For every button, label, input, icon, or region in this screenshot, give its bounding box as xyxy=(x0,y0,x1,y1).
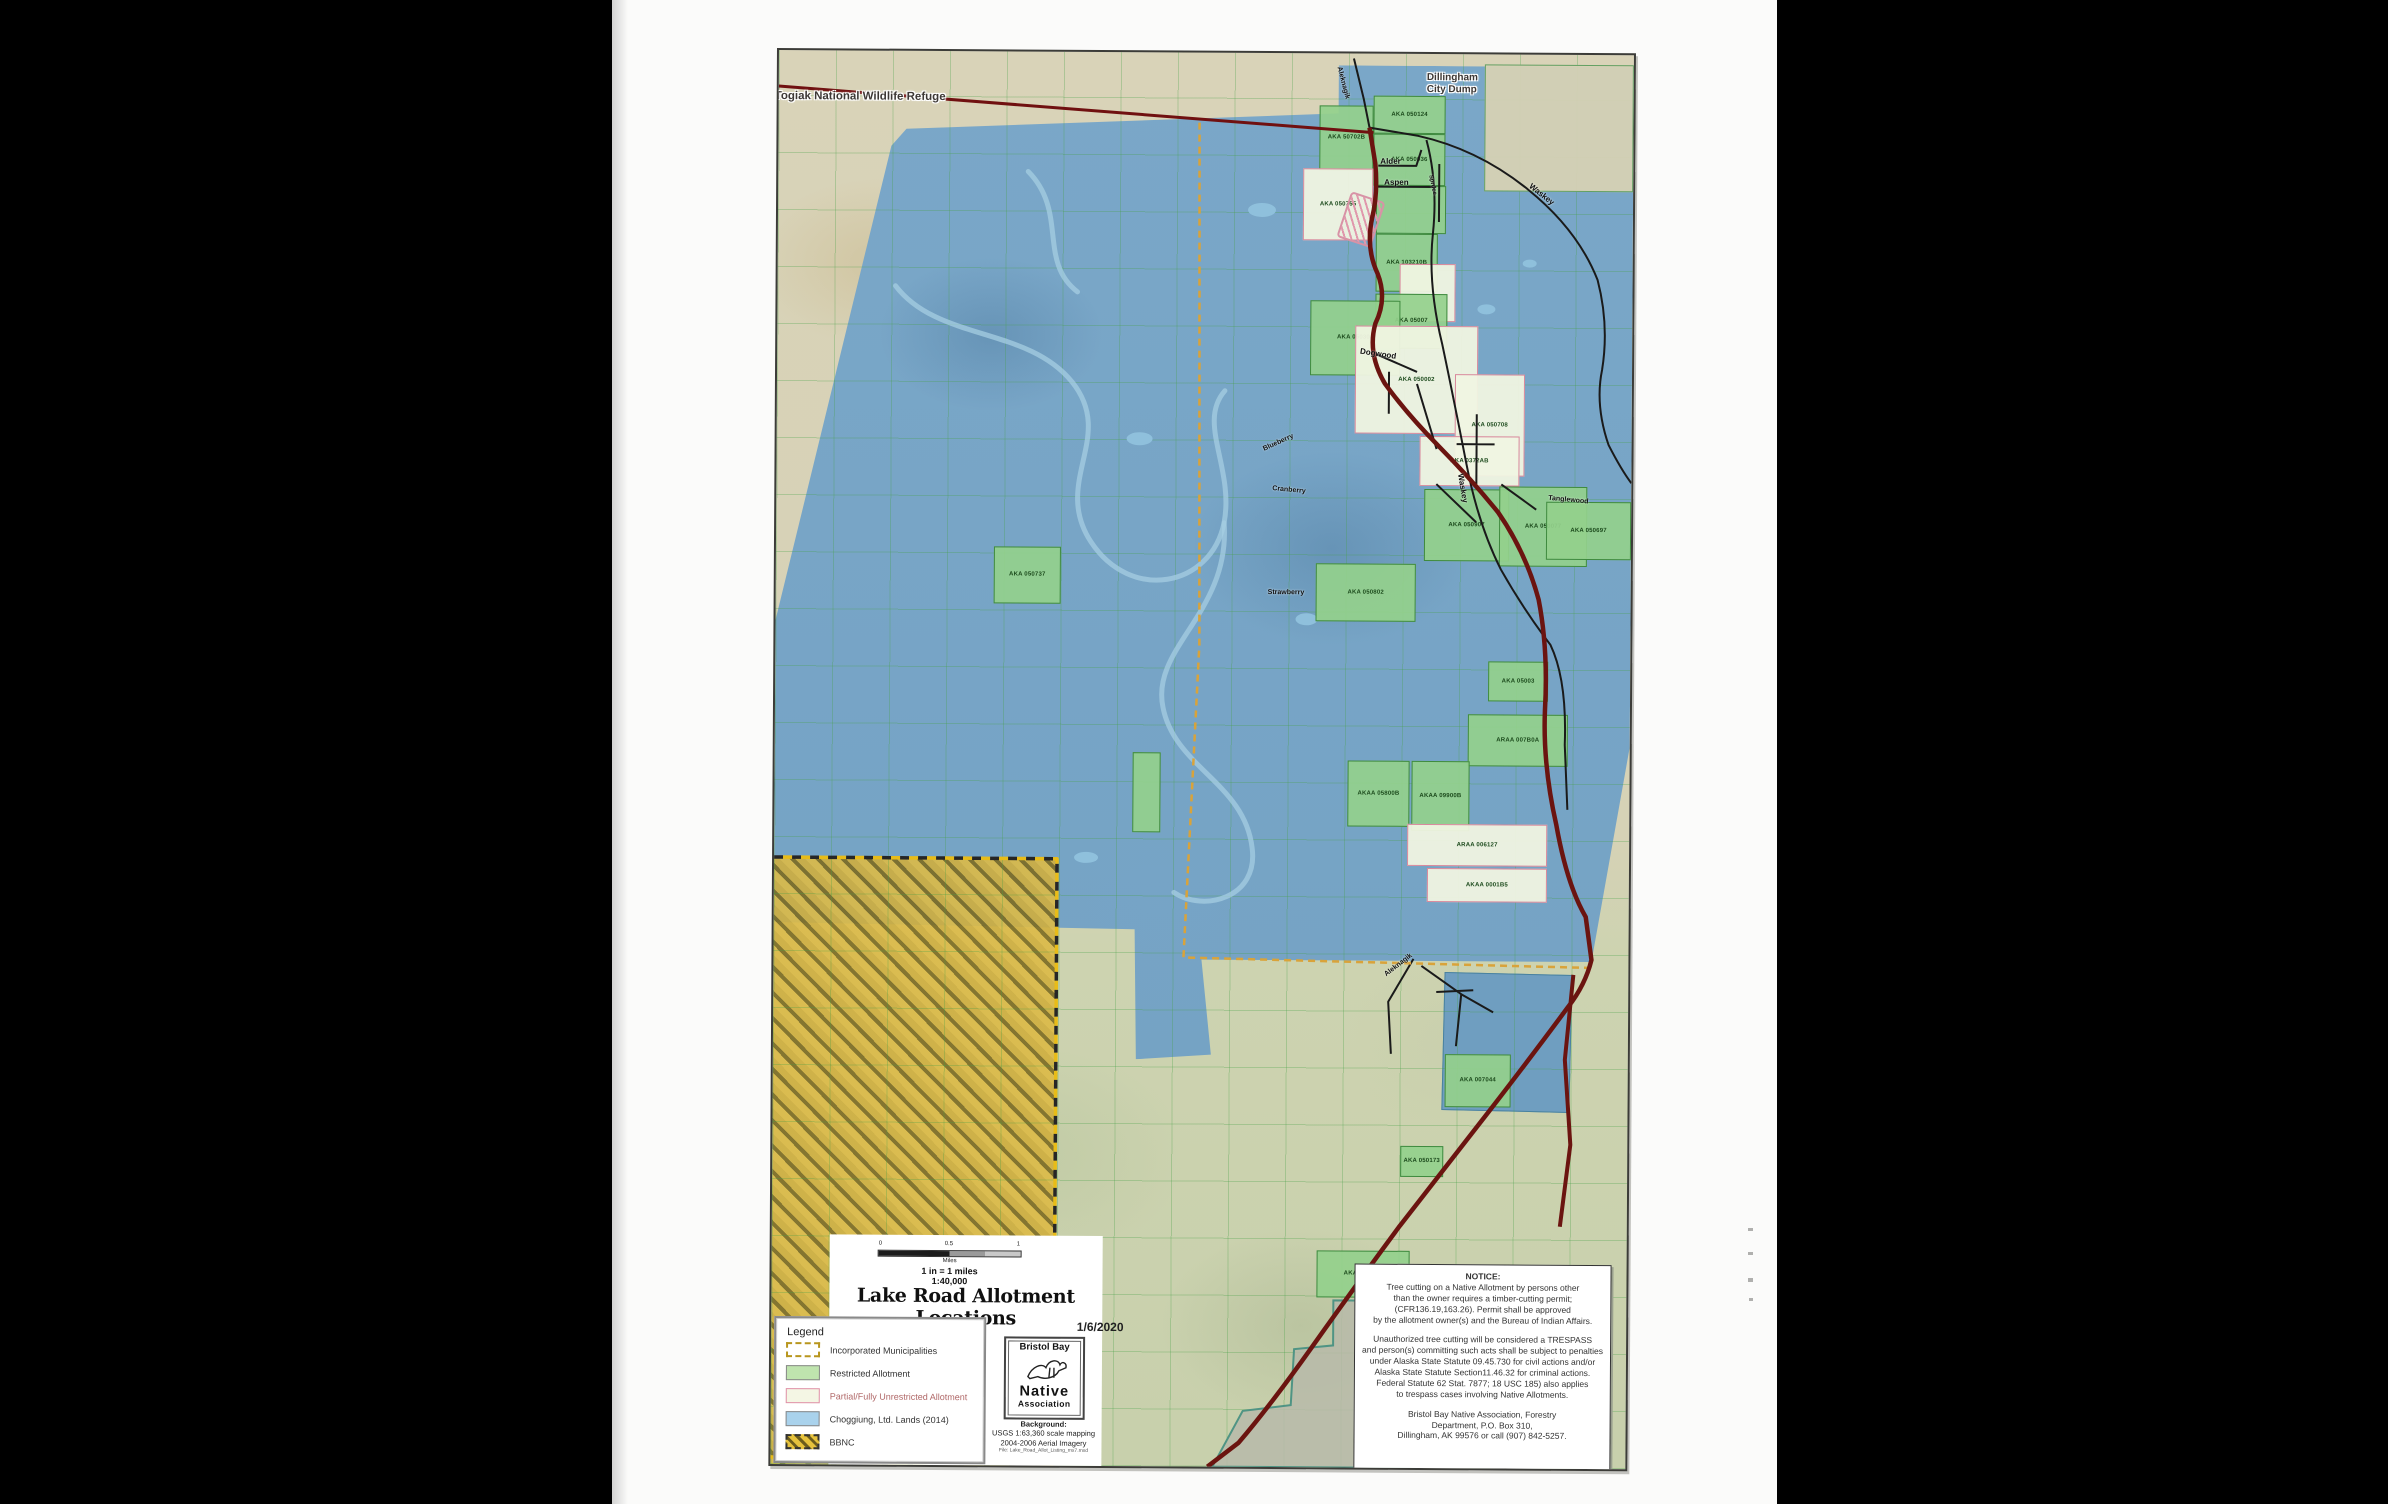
street-name-label: Cranberry xyxy=(1272,485,1306,495)
legend-box: Legend Incorporated Municipalities Restr… xyxy=(773,1316,986,1464)
screenshot-root: { "map": { "refuge_label": "Togiak Natio… xyxy=(0,0,2388,1504)
legend-item-unrestricted-allotment: Partial/Fully Unrestricted Allotment xyxy=(786,1388,984,1404)
street-name-label: Alder xyxy=(1380,157,1401,166)
scale-bar-block: 0 0.5 1 Miles 1 in = 1 miles 1:40,000 xyxy=(849,1240,1049,1286)
street-name-label: Waskey xyxy=(1527,182,1556,207)
scale-unit: Miles xyxy=(850,1257,1050,1264)
legend-item-choggiung-lands: Choggiung, Ltd. Lands (2014) xyxy=(786,1411,984,1427)
street-name-label: Aspen xyxy=(1384,178,1409,187)
scan-dust-mark xyxy=(1748,1252,1753,1255)
legend-title: Legend xyxy=(787,1326,984,1339)
notice-box: NOTICE: Tree cutting on a Native Allotme… xyxy=(1353,1264,1611,1472)
notice-paragraph-1: Tree cutting on a Native Allotment by pe… xyxy=(1361,1281,1604,1326)
unrestricted-swatch xyxy=(786,1388,820,1403)
notice-paragraph-2: Unauthorized tree cutting will be consid… xyxy=(1361,1334,1604,1401)
map-sheet: AKA 050124AKA 50702BAKA 050036AKA 050755… xyxy=(768,48,1636,1471)
bbna-logo: Bristol Bay Native Association xyxy=(1004,1336,1086,1419)
notice-paragraph-3: Bristol Bay Native Association, Forestry… xyxy=(1361,1408,1604,1442)
street-name-label: Blueberry xyxy=(1262,433,1295,453)
legend-item-bbnc: BBNC xyxy=(785,1434,983,1450)
refuge-boundary-label: Togiak National Wildlife Refuge xyxy=(775,90,946,103)
municipality-swatch xyxy=(786,1342,820,1357)
street-name-label: Waskey xyxy=(1456,473,1470,504)
street-name-label: Aleknagik xyxy=(1383,952,1413,978)
scanned-page: AKA 050124AKA 50702BAKA 050036AKA 050755… xyxy=(612,0,1777,1504)
street-name-label: Spruce xyxy=(1427,174,1437,195)
scan-dust-mark xyxy=(1748,1278,1753,1282)
legend-item-restricted-allotment: Restricted Allotment xyxy=(786,1365,984,1381)
bbnc-swatch xyxy=(785,1434,819,1449)
scale-bar xyxy=(878,1250,1022,1258)
scan-dust-mark xyxy=(1748,1228,1753,1231)
scan-dust-mark xyxy=(1749,1298,1753,1301)
map-date: 1/6/2020 xyxy=(1060,1320,1140,1334)
restricted-swatch xyxy=(786,1365,820,1380)
choggiung-swatch xyxy=(786,1411,820,1426)
scale-ticks: 0 0.5 1 xyxy=(879,1241,1021,1250)
crane-icon xyxy=(1019,1353,1069,1381)
street-name-label: Dogwood xyxy=(1360,347,1397,361)
street-name-label: Tanglewood xyxy=(1548,495,1589,506)
legend-item-incorporated-municipalities: Incorporated Municipalities xyxy=(786,1342,984,1358)
city-dump-label: Dillingham City Dump xyxy=(1427,72,1478,96)
street-name-label: Aleknagik xyxy=(1336,66,1351,100)
background-source-note: Background: USGS 1:63,360 scale mapping … xyxy=(988,1419,1098,1454)
street-name-label: Strawberry xyxy=(1268,589,1305,596)
